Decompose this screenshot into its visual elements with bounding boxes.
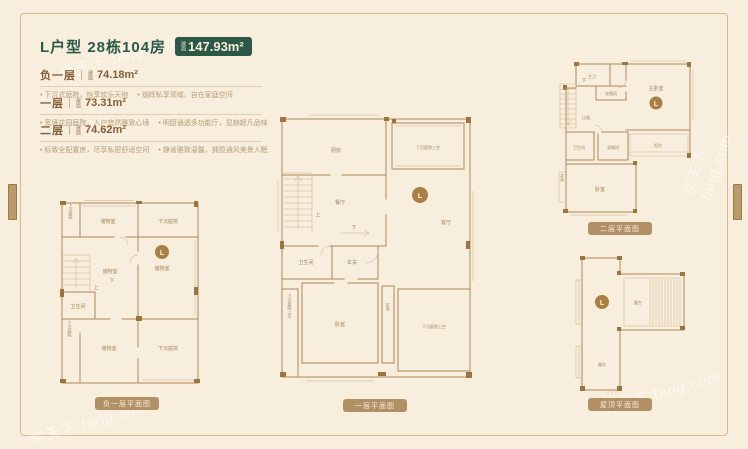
divider [69,125,70,135]
area-prefix: 建面 [87,70,92,81]
divider-line [40,114,262,115]
room-label: 客厅 [441,219,451,226]
divider [81,70,82,80]
room-label: 衣帽间 [607,144,619,150]
basement-floorplan: 下沉庭院 储物室 下沉庭院 L 储物室 储物室 上 下 卫生间 储物室 下沉庭院… [50,197,210,390]
floor-area: 74.18m² [97,69,138,81]
unit-badge-letter: L [418,191,423,200]
second-plan-caption: 二层平面图 [588,222,652,235]
stairs [284,173,369,236]
unit-badge-letter: L [654,99,659,108]
room-label: 下沉庭院 [158,218,178,225]
caption-text: 二层平面图 [600,224,640,234]
room-label: 储物室 [154,265,169,272]
right-border-ornament [733,184,742,220]
roof-plan-caption: 屋顶平面图 [588,398,652,411]
unit-badge-letter: L [160,248,165,257]
room-label: 露台 [598,361,606,367]
second-floorplan: 主卫 衣帽间 主卧室 L 下 过道 卫生间 衣帽间 阳台 卧室 花池 [558,60,698,218]
room-label: 厨房 [331,147,341,154]
room-label: 卫生间 [70,303,85,310]
area-prefix: 建面 [180,41,185,53]
basement-plan-caption: 负一层平面图 [95,397,159,410]
walls [60,201,200,384]
room-label: 阳台 [654,142,662,148]
walls [576,256,685,394]
room-label: 储物室 [100,218,115,225]
stairs-down-label: 下 [582,78,587,84]
floor-name: 负一层 [40,67,76,83]
room-label: 下沉庭院 [158,345,178,352]
room-label: 主卧室 [648,85,663,92]
room-label: 卧室 [335,321,345,328]
walls [559,61,693,215]
floor-name: 二层 [40,122,64,138]
walls [278,115,473,381]
page-title: L户型 28栋104房 [40,36,166,57]
caption-text: 屋顶平面图 [600,400,640,410]
roof-hatch [650,279,677,325]
stairs-down-label: 下 [110,278,115,284]
floor-desc: 静谧雅致温馨，拥揽通风美景入眠 [158,147,267,154]
room-label: 卧室 [595,186,605,193]
room-label: 花池 [386,302,391,311]
room-label: 下沉庭院上空 [416,144,440,150]
first-plan-caption: 一层平面图 [343,399,407,412]
room-label: 卫生间 [298,259,313,266]
left-border-ornament [8,184,17,220]
floorplan-page: 房天下 fang.com 房天下 fang.com 房天下 fang.com 房… [0,0,748,449]
roof-floorplan: L 露台 露台 [562,252,694,396]
total-area-value: 147.93m² [188,39,244,54]
room-label: 花池 [560,173,565,182]
header: L户型 28栋104房 建面 147.93m² [40,36,252,57]
room-label: 餐厅 [335,199,345,206]
room-label: 过道 [582,114,590,120]
first-floorplan: 厨房 下沉庭院上空 餐厅 L 客厅 上 下 卫生间 玄关 卧室 花池 下沉庭院上… [274,111,478,395]
room-label: 露台 [634,299,642,305]
divider-line [40,141,262,142]
room-label: 储物室 [102,268,117,275]
stairs-up-label: 上 [94,284,99,290]
room-label: 下沉庭院 [68,321,73,338]
stairs [560,84,576,128]
room-label: 下沉庭院上空 [288,294,293,318]
stairs [62,255,90,292]
section-second-floor: 二层 建面 74.62m² 标致全配置房，尽享私密舒适空间静谧雅致温馨，拥揽通风… [40,122,272,155]
total-area-badge: 建面 147.93m² [175,37,252,56]
floor-name: 一层 [40,95,64,111]
stairs-down-label: 下 [352,225,357,231]
room-label: 玄关 [347,259,357,266]
divider [69,98,70,108]
room-label: 主卫 [588,73,596,79]
floor-area: 74.62m² [85,124,126,136]
area-prefix: 建面 [75,125,80,136]
room-label: 衣帽间 [605,90,617,96]
room-label: 卫生间 [573,144,585,150]
caption-text: 一层平面图 [355,401,395,411]
divider-line [40,86,262,87]
area-prefix: 建面 [75,98,80,109]
unit-badge-letter: L [600,298,605,307]
room-label: 下沉庭院 [69,203,74,220]
stairs-up-label: 上 [316,211,321,217]
floor-desc: 标致全配置房，尽享私密舒适空间 [40,147,149,154]
room-label: 下沉庭院上空 [422,323,446,329]
room-label: 储物室 [101,345,116,352]
caption-text: 负一层平面图 [103,399,151,409]
floor-area: 73.31m² [85,97,126,109]
